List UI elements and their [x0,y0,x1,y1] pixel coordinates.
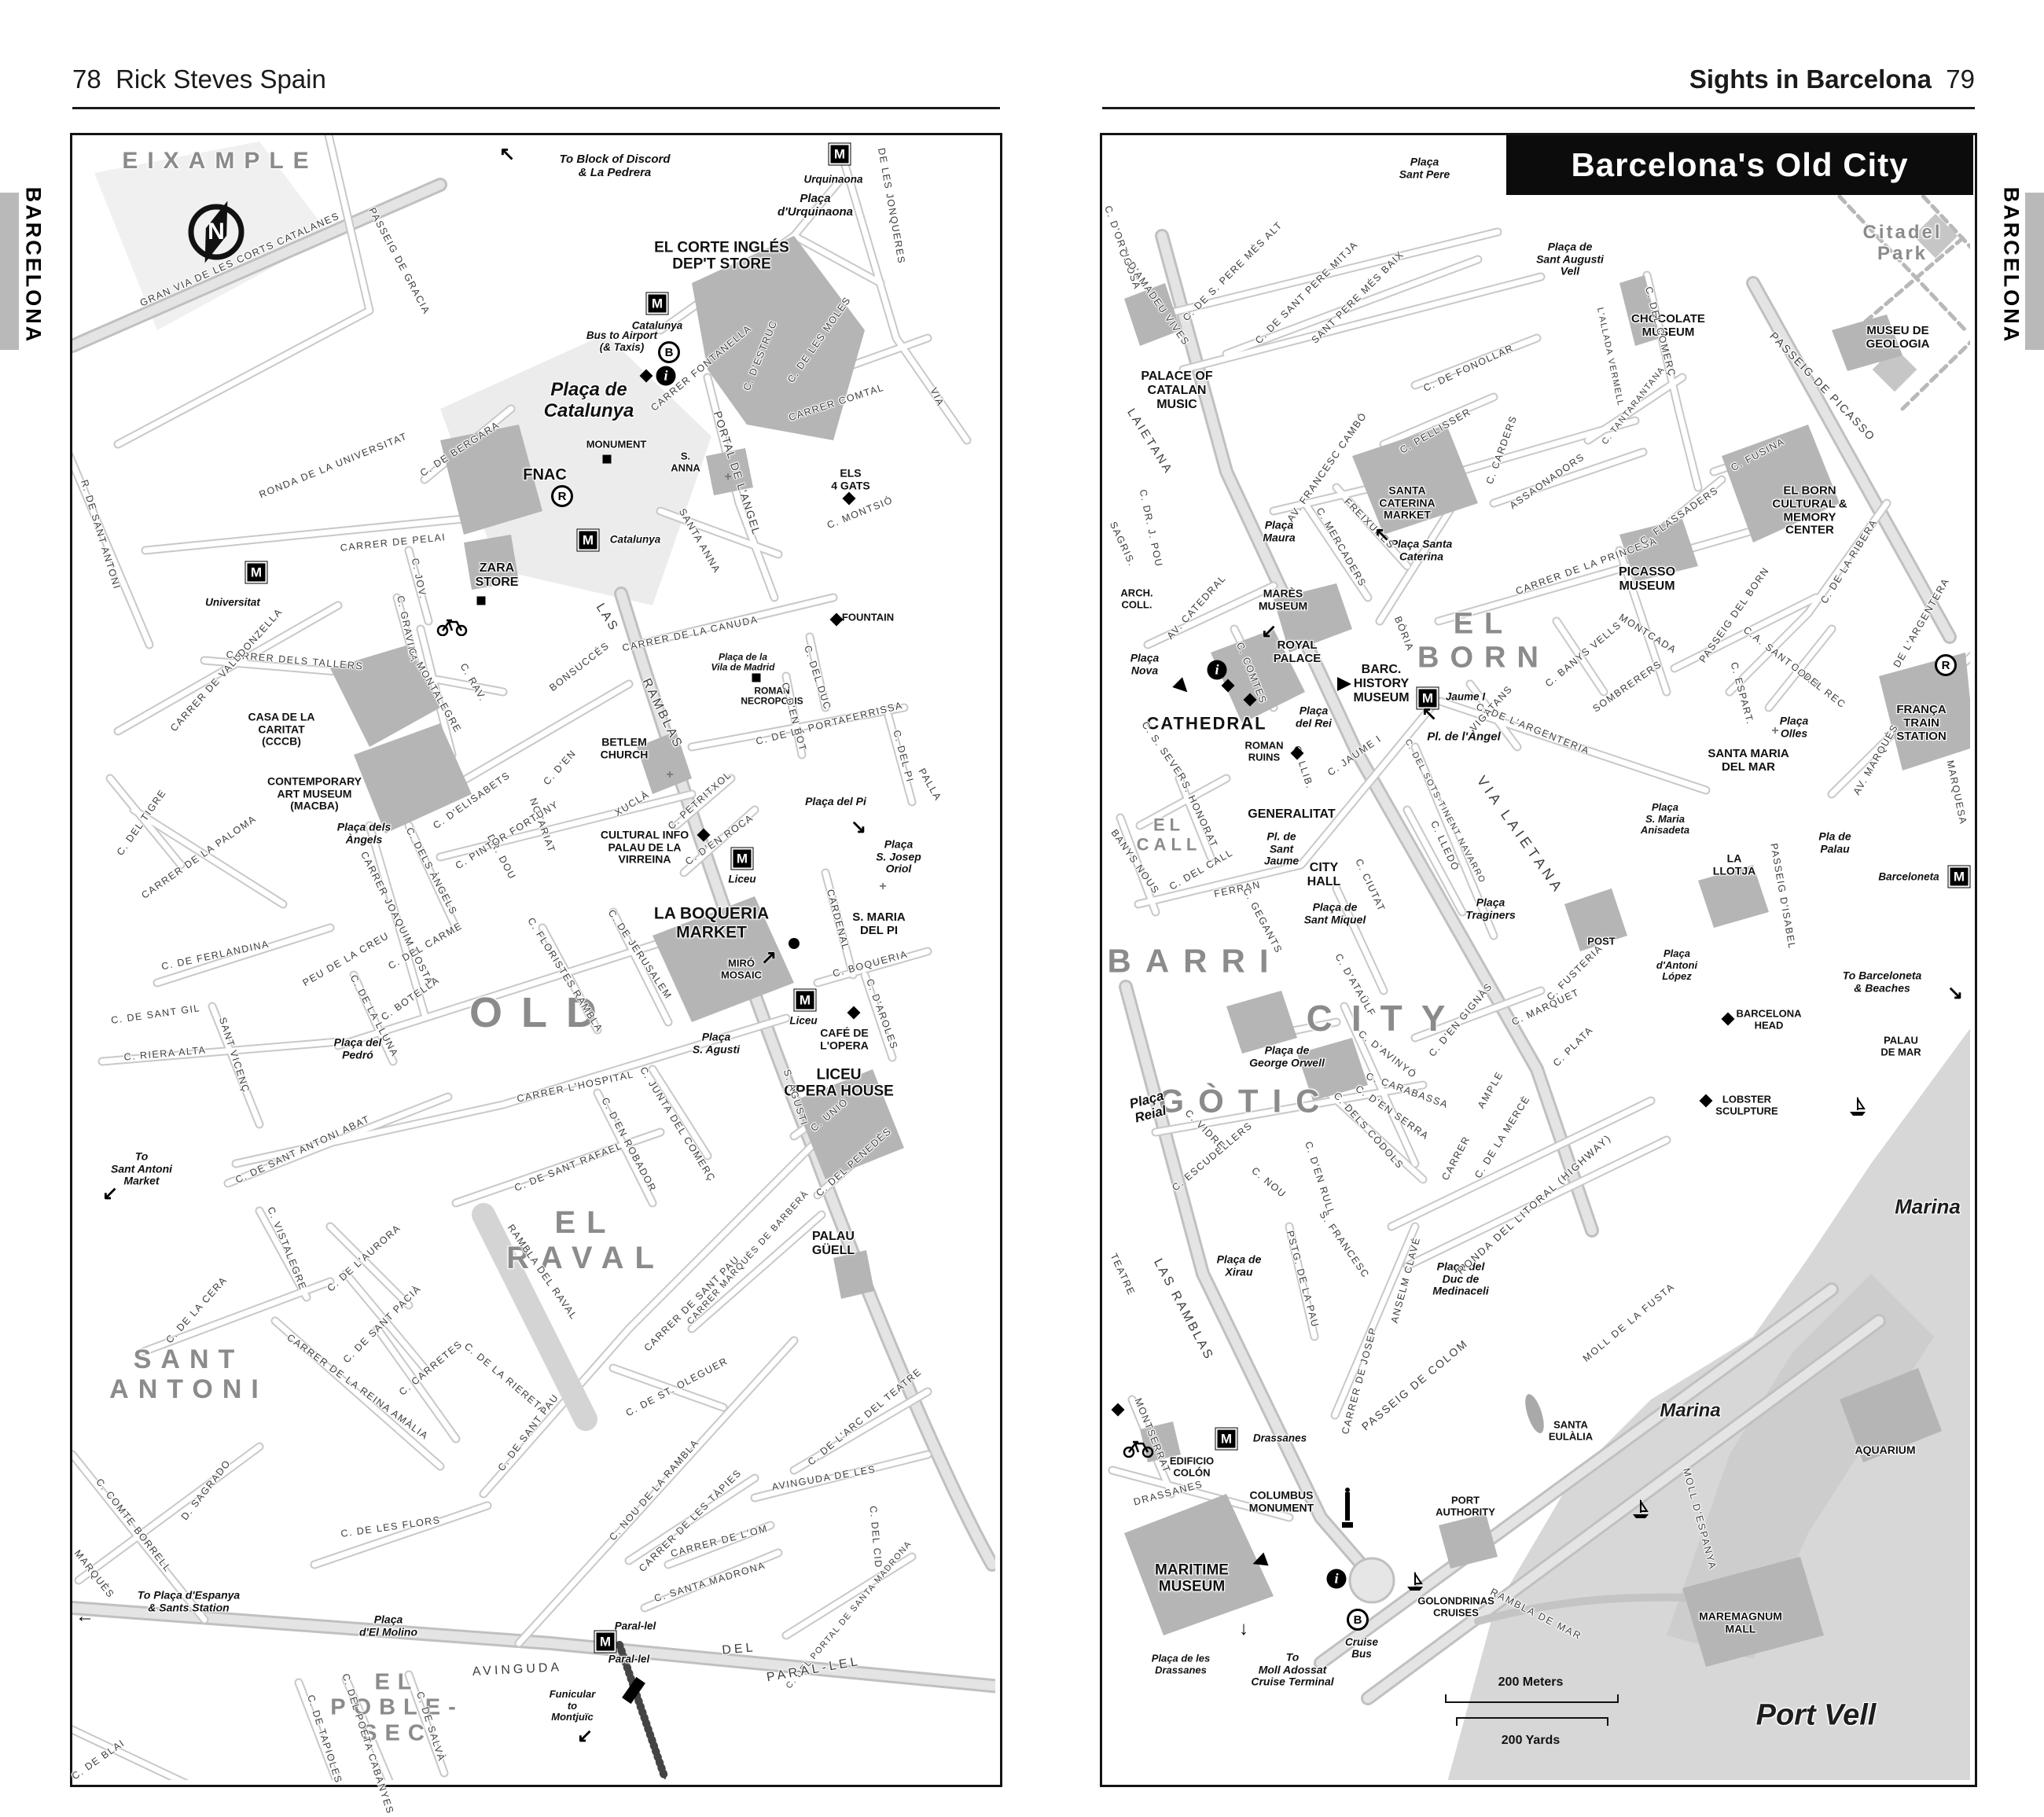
street-label: C. PLATA [1551,1024,1595,1068]
note-label: To Block of Discord & La Pedrera [559,153,670,180]
street-label: AVINGUDA DE LES [771,1463,877,1492]
mname-label: Liceu [728,873,755,885]
street-label: C. DE SANT GIL [110,1002,200,1026]
street-label: C. DE BERGARA [418,419,502,479]
landmark-label: GOLONDRINAS CRUISES [1417,1595,1494,1618]
landmark-label: S. ANNA [671,451,700,473]
diamond-icon [1245,695,1255,704]
tri-icon [1250,1552,1268,1570]
landmark-label: POST [1587,936,1615,948]
landmark-label: CATHEDRAL [1146,715,1266,734]
square-icon [752,674,761,682]
plaza-label: Plaça Maura [1263,519,1295,543]
street-label: C. JAUME I [1325,733,1384,778]
street-label: LAS RAMBLAS [1150,1256,1215,1363]
landmark-label: ELS 4 GATS [831,467,870,491]
street-label: C. MONTSIÓ [825,495,895,531]
landmark-label: PICASSO MUSEUM [1619,565,1675,594]
street-label: C. DEL SOTS-TINENT NAVARRO [1402,737,1487,885]
street-label: C. DEL PENEDÈS [814,1125,894,1198]
street-label: PASSEIG D'ISABEL [1768,843,1798,951]
svg-text:N: N [208,219,225,245]
street-label: C. RIERA ALTA [123,1044,207,1062]
street-label: C. JOV. [410,557,429,601]
landmark-label: FRANÇA TRAIN STATION [1896,704,1947,743]
diamond-icon [1701,1096,1711,1105]
dot-icon [789,938,800,949]
street-label: AV. MARQUÈS [1851,723,1901,797]
plaza-label: Pl. de Sant Jaume [1264,830,1299,867]
diamond-icon [1723,1014,1733,1024]
rail-icon: R [1935,654,1957,676]
metro-icon: M [578,530,599,551]
plaza-label: Plaça d'Urquinaona [778,193,853,219]
mname-label: Universitat [205,596,260,608]
note-label: To Moll Adossat Cruise Terminal [1251,1651,1333,1688]
plaza-label: Plaça Reial [1128,1088,1170,1126]
street-label: ANSELM CLAVÉ [1389,1236,1423,1325]
plaza-label: Plaça del Rei [1296,704,1332,729]
street-label: AV. CATEDRAL [1165,572,1229,642]
landmark-label: CONTEMPORARY ART MUSEUM (MACBA) [267,775,362,812]
street-label: C. PELLISSER [1398,406,1472,455]
street-label: SANT PERE MÉS BAIX [1309,248,1406,345]
cross-icon: + [724,470,731,484]
district-label: CITY [1307,999,1465,1039]
water-label-label: Marina [1895,1195,1961,1218]
landmark-label: MIRÓ MOSAIC [721,958,762,980]
street-label: VIA LAIETANA [1473,773,1567,897]
street-label: PALLA [917,767,944,803]
plaza-label: Pla de Palau [1818,830,1851,855]
mname-label: Urquinaona [803,173,862,185]
water-label-label: Marina [1660,1401,1720,1422]
street-label: C. FUSINA [1729,436,1786,473]
street-label: C. DE LES MOLES [785,295,853,385]
street-label: C. CARDERS [1484,414,1520,485]
metro-icon: M [829,144,851,165]
plaza-label: Plaça Traginers [1465,896,1516,921]
street-label: C. DE S. PERE MÉS ALT [1181,219,1285,323]
plaza-label: Plaça de Catalunya [544,380,634,422]
landmark-label: PALAU DE MAR [1880,1035,1921,1057]
street-label: C. RAV. [458,661,489,703]
info-icon: i [1327,1569,1347,1589]
plaza-label: Plaça dels Àngels [337,821,392,845]
street-label: DE LES JONQUERES [876,147,907,265]
plaza-label: Pl. de l'Àngel [1427,731,1501,745]
street-label: C. DR. J. POU [1138,488,1165,568]
mname-label: Cruise Bus [1345,1636,1378,1660]
street-label: BONSUCCÉS [547,640,612,693]
district-label: SANT ANTONI [109,1344,268,1404]
street-label: LAIETANA [1124,406,1175,477]
diamond-icon [832,615,841,624]
boat-icon [1847,1096,1869,1118]
district-label: EIXAMPLE [122,148,318,175]
street-label: LAS [593,601,621,635]
note-label: To Sant Antoni Market [111,1150,172,1187]
street-label: C. DE FERLANDINA [160,939,270,973]
ship-icon [1521,1392,1548,1436]
arrow-icon: ↖ [1421,703,1437,726]
book-spread: { "page": { "left_page_number": "78", "l… [0,0,2044,1817]
landmark-label: CHOCOLATE MUSEUM [1631,313,1705,340]
mname-label: Drassanes [1253,1432,1307,1444]
street-label: C. DE FONOLLAR [1421,342,1515,394]
note-label: Funicular to Montjuïc [550,1689,596,1723]
street-label: CARRER [1439,1134,1472,1182]
street-label: L'ALLADA VERMELL [1595,307,1626,407]
street-label: C. D'EN RULL [1303,1140,1337,1217]
diamond-icon [1113,1405,1123,1414]
street-label: MARQUÈS [72,1548,116,1601]
map-labels-layer: EIXAMPLEOLDEL RAVALSANT ANTONIEL POBLE- … [0,0,2044,1817]
mname-label: Bus to Airport (& Taxis) [586,329,657,353]
plaza-label: Plaça Santa Caterina [1391,538,1453,562]
street-label: C. DEL TIGRE [115,787,168,857]
landmark-label: LA BOQUERIA MARKET [654,904,769,941]
diamond-icon [844,494,854,503]
plaza-label: Plaça Sant Pere [1399,156,1450,180]
bike-icon [436,617,468,636]
info-icon: i [656,366,676,386]
street-label: PEU DE LA CREU [301,930,392,988]
landmark-label: MAREMAGNUM MALL [1699,1610,1782,1635]
street-label: PASSEIG DE PICASSO [1767,330,1877,444]
street-label: RONDA DE LA UNIVERSITAT [258,431,410,501]
arrow-icon: ↘ [851,816,866,839]
plaza-label: Plaça de Xirau [1217,1253,1262,1278]
metro-icon: M [1216,1429,1237,1450]
street-label: MARQUESA [1944,760,1969,826]
landmark-label: EL CORTE INGLÉS DEP'T STORE [654,240,789,274]
street-label: C. ESPART. [1729,661,1756,726]
street-label: C. DELS ÀNGELS [404,826,459,917]
plaza-label: Plaça de les Drassanes [1152,1653,1210,1675]
street-label: C. DE SANT PACIÀ [341,1283,424,1366]
mname-label: Barceloneta [1878,870,1939,882]
street-label: C. D'AROLES [864,977,900,1051]
mname-label: Paral-lel [608,1653,650,1664]
metro-icon: M [246,562,267,583]
plaza-label: Plaça S. Agusti [693,1031,740,1055]
street-label: C. DEL CID [868,1506,884,1569]
cross-icon: + [879,880,886,894]
landmark-label: LOBSTER SCULPTURE [1715,1094,1777,1116]
street-label: C. DE LES FLORS [340,1514,442,1539]
street-label: D. SAGRADO [179,1458,233,1522]
street-label: PASSEIG DE GRACIA [366,206,432,317]
bike-icon [1123,1439,1154,1458]
street-label: SOMBRERERS [1590,658,1664,714]
landmark-label: PALAU GÜELL [812,1230,855,1258]
street-label: C. DEL REC [1788,660,1847,710]
street-label: CARRER DE PELAI [340,531,447,554]
plaza-label: Plaça S. Josep Oriol [876,838,921,875]
plaza-label: Plaça S. Maria Anisadeta [1641,802,1689,837]
street-label: C. FLASSADERS [1638,484,1721,546]
street-label: VIA [928,386,946,408]
street-label: C. BOTELLA [379,974,442,1023]
street-label: XUCLÀ [612,789,651,818]
street-label: DRASSANES [1132,1479,1204,1508]
street-label: BÒRIA [1392,615,1416,653]
street-label: C. DE ST. OLEGUER [624,1355,730,1418]
diamond-icon [1223,681,1233,690]
plaza-label: Plaça Olles [1780,715,1809,739]
street-label: C. DE LA RIERETA [462,1341,549,1416]
street-label: PASSEIG DE COLOM [1359,1337,1470,1433]
landmark-label: SANTA EULÀLIA [1549,1419,1593,1442]
cross-icon: + [666,768,673,782]
metro-icon: M [795,990,816,1011]
street-label: CARRER MARQUÈS DE BARBERÀ [686,1189,811,1327]
street-label: RAMBLA DE MAR [1488,1587,1583,1642]
landmark-label: CASA DE LA CARITAT (CCCB) [248,711,314,748]
district-label: BARRI [1108,942,1283,979]
street-label: C. VISTALEGRE [265,1205,308,1292]
landmark-label: S. MARIA DEL PI [852,911,906,938]
street-label: R. DE SANT ANTONI [79,479,123,591]
cross-icon: + [1771,724,1778,738]
diamond-icon [699,830,708,840]
street-label: AVINGUDA [472,1661,562,1679]
bus-icon: B [1347,1609,1369,1631]
metro-icon: M [595,1631,616,1653]
landmark-label: SANTA CATERINA MARKET [1379,484,1435,521]
note-label: To Plaça d'Espanya & Sants Station [138,1589,240,1613]
diamond-icon [1292,749,1302,758]
plaza-label: Plaça de George Orwell [1249,1044,1325,1068]
street-label: C. NOU [1249,1165,1288,1201]
street-label: C. DE SANT PERE MITJA [1253,239,1360,346]
street-label: MOLL DE LA FUSTA [1581,1281,1677,1364]
arrow-icon: ↓ [1239,1618,1248,1640]
district-label: EL CALL [1137,815,1202,854]
street-label: C. DE BLAI [70,1738,127,1782]
metro-icon: M [647,293,668,314]
street-label: C. BOQUERIA [832,948,910,979]
column-icon [1342,1488,1353,1528]
landmark-label: SANTA MARIA DEL MAR [1708,748,1788,774]
landmark-label: MUSEU DE GEOLOGIA [1866,325,1930,351]
landmark-label: CULTURAL INFO PALAU DE LA VIRREINA [601,829,689,866]
street-label: CARRER L'HOSPITAL [516,1068,635,1104]
street-label: C. CARRETES [397,1338,465,1397]
street-label: ASSAONADORS [1508,451,1587,511]
street-label: SANT VICENÇ [217,1016,252,1094]
landmark-label: CITY HALL [1307,861,1341,889]
street-label: C. MONTALEGRE [406,646,463,735]
landmark-label: GENERALITAT [1248,807,1335,822]
arrow-icon: ↙ [577,1725,593,1748]
street-label: MONTSERRAT [1132,1396,1172,1474]
street-label: SAGRIS. [1108,520,1138,568]
mname-label: Catalunya [610,533,661,545]
street-label: C. DE L'ARGENTERIA [1475,701,1591,757]
landmark-label: FNAC [523,466,567,484]
street-label: CARRER COMTAL [787,382,885,424]
square-icon [477,597,486,605]
street-label: C. D'ELISABETS [431,770,512,831]
compass-icon: N [178,194,254,270]
landmark-label: COLUMBUS MONUMENT [1249,1489,1314,1514]
district-label: Citadel Park [1862,223,1942,265]
street-label: C. DEL DUC [802,644,833,712]
street-label: AMPLE [1476,1069,1505,1110]
mname-label: Liceu [789,1014,817,1026]
district-label: EL RAVAL [506,1205,665,1276]
street-label: C. D'EN [541,748,578,787]
bus-icon: B [658,341,680,363]
street-label: DEL [722,1641,757,1658]
street-label: PSTG. DE LA PAU [1285,1230,1321,1329]
street-label: CARDENAL [825,888,851,952]
street-label: RONDA DEL LITORAL (HIGHWAY) [1455,1132,1614,1277]
landmark-label: ROMAN RUINS [1244,740,1283,763]
arrow-icon: ↗ [761,947,777,969]
metro-icon: M [732,848,753,870]
boat-icon [1404,1571,1426,1593]
street-label: C. DE SANT ANTONI ABAT [233,1113,372,1186]
landmark-label: MONUMENT [586,440,647,451]
landmark-label: EL BORN CULTURAL & MEMORY CENTER [1772,484,1847,537]
street-label: C. DEL PI [891,729,915,784]
plaza-label: Plaça Nova [1130,652,1160,676]
landmark-label: EDIFICIO COLÓN [1170,1455,1214,1478]
mname-label: Paral-lel [615,1620,656,1631]
landmark-label: CAFÉ DE L'OPERA [820,1027,869,1051]
arrow-icon: ← [75,1606,94,1628]
street-label: CARRER DE LA PALOMA [139,813,258,901]
plaza-label: Plaça de la Vila de Madrid [711,653,775,674]
plaza-label: Plaça d'El Molino [359,1613,417,1638]
landmark-label: BARCELONA HEAD [1736,1008,1801,1031]
street-label: MONTCADA [1617,612,1678,656]
landmark-label: AQUARIUM [1855,1444,1916,1457]
district-label: EL BORN [1417,607,1550,674]
tri-icon [1337,677,1351,691]
landmark-label: MARITIME MUSEUM [1155,1562,1229,1596]
diamond-icon [849,1008,858,1017]
arrow-icon: ↖ [1374,524,1390,546]
street-label: C. PETRITXOL [666,769,733,832]
landmark-label: BARC. HISTORY MUSEUM [1353,663,1409,705]
street-label: CARRER DE LA CANUDA [621,614,759,653]
arrow-icon: ↙ [102,1183,118,1205]
plaza-label: Plaça del Pi [805,796,866,808]
plaza-label: Plaça de Sant Augusti Vell [1536,241,1604,278]
landmark-label: BETLEM CHURCH [601,736,649,760]
landmark-label: MARÈS MUSEUM [1259,587,1307,612]
arrow-icon: ↙ [1261,620,1277,643]
tri-icon [1172,677,1192,697]
boat-icon [1630,1499,1652,1521]
landmark-label: PALACE OF CATALAN MUSIC [1141,370,1212,412]
street-label: C. BANYS VELLS [1543,620,1623,690]
street-label: C. DE L'AURORA [325,1222,403,1293]
street-label: PORTAL DE L'ANGEL [711,410,763,537]
plaza-label: Plaça d'Antoni López [1656,948,1697,983]
landmark-label: LA LLOTJA [1713,852,1755,877]
landmark-label: ROYAL PALACE [1274,639,1322,666]
street-label: C. DE L'ARC DEL TEATRE [806,1366,924,1467]
arrow-icon: ↘ [1947,982,1963,1005]
street-label: C. JUNTA DEL COMERÇ [638,1065,718,1183]
note-label: To Barceloneta & Beaches [1843,969,1922,994]
street-label: C. SANTA MADRONA [653,1560,766,1604]
street-label: PASSEIG DEL BORN [1697,565,1772,665]
water-label-label: Port Vell [1756,1699,1877,1733]
arrow-icon: ↖ [499,143,515,166]
street-label: C. DE LA CERA [164,1274,229,1345]
street-label: C. DE SANT RAFAEL [513,1140,623,1194]
street-label: C. D'AMADEU VIVES [1116,247,1192,348]
landmark-label: FOUNTAIN [842,612,894,624]
plaza-label: Plaça de Sant Miquel [1304,901,1366,925]
landmark-label: ARCH. COLL. [1120,587,1153,610]
info-icon: i [1208,660,1227,680]
street-label: C. COMTE BORRELL [94,1477,173,1574]
landmark-label: PORT AUTHORITY [1436,1495,1495,1517]
street-label: TEATRE [1108,1252,1138,1297]
metro-icon: M [1949,866,1970,888]
street-label: MOLL D'ESPANYA [1681,1467,1719,1572]
rail-icon: R [551,485,573,507]
landmark-label: ZARA STORE [476,561,519,590]
street-label: C. UNIÓ [808,1096,850,1134]
street-label: S. FRANCESC [1317,1209,1371,1280]
diamond-icon [642,371,651,381]
plaza-label: Plaça del Pedró [334,1036,382,1061]
street-label: SANTA ANNA [677,506,722,575]
square-icon [603,455,612,464]
